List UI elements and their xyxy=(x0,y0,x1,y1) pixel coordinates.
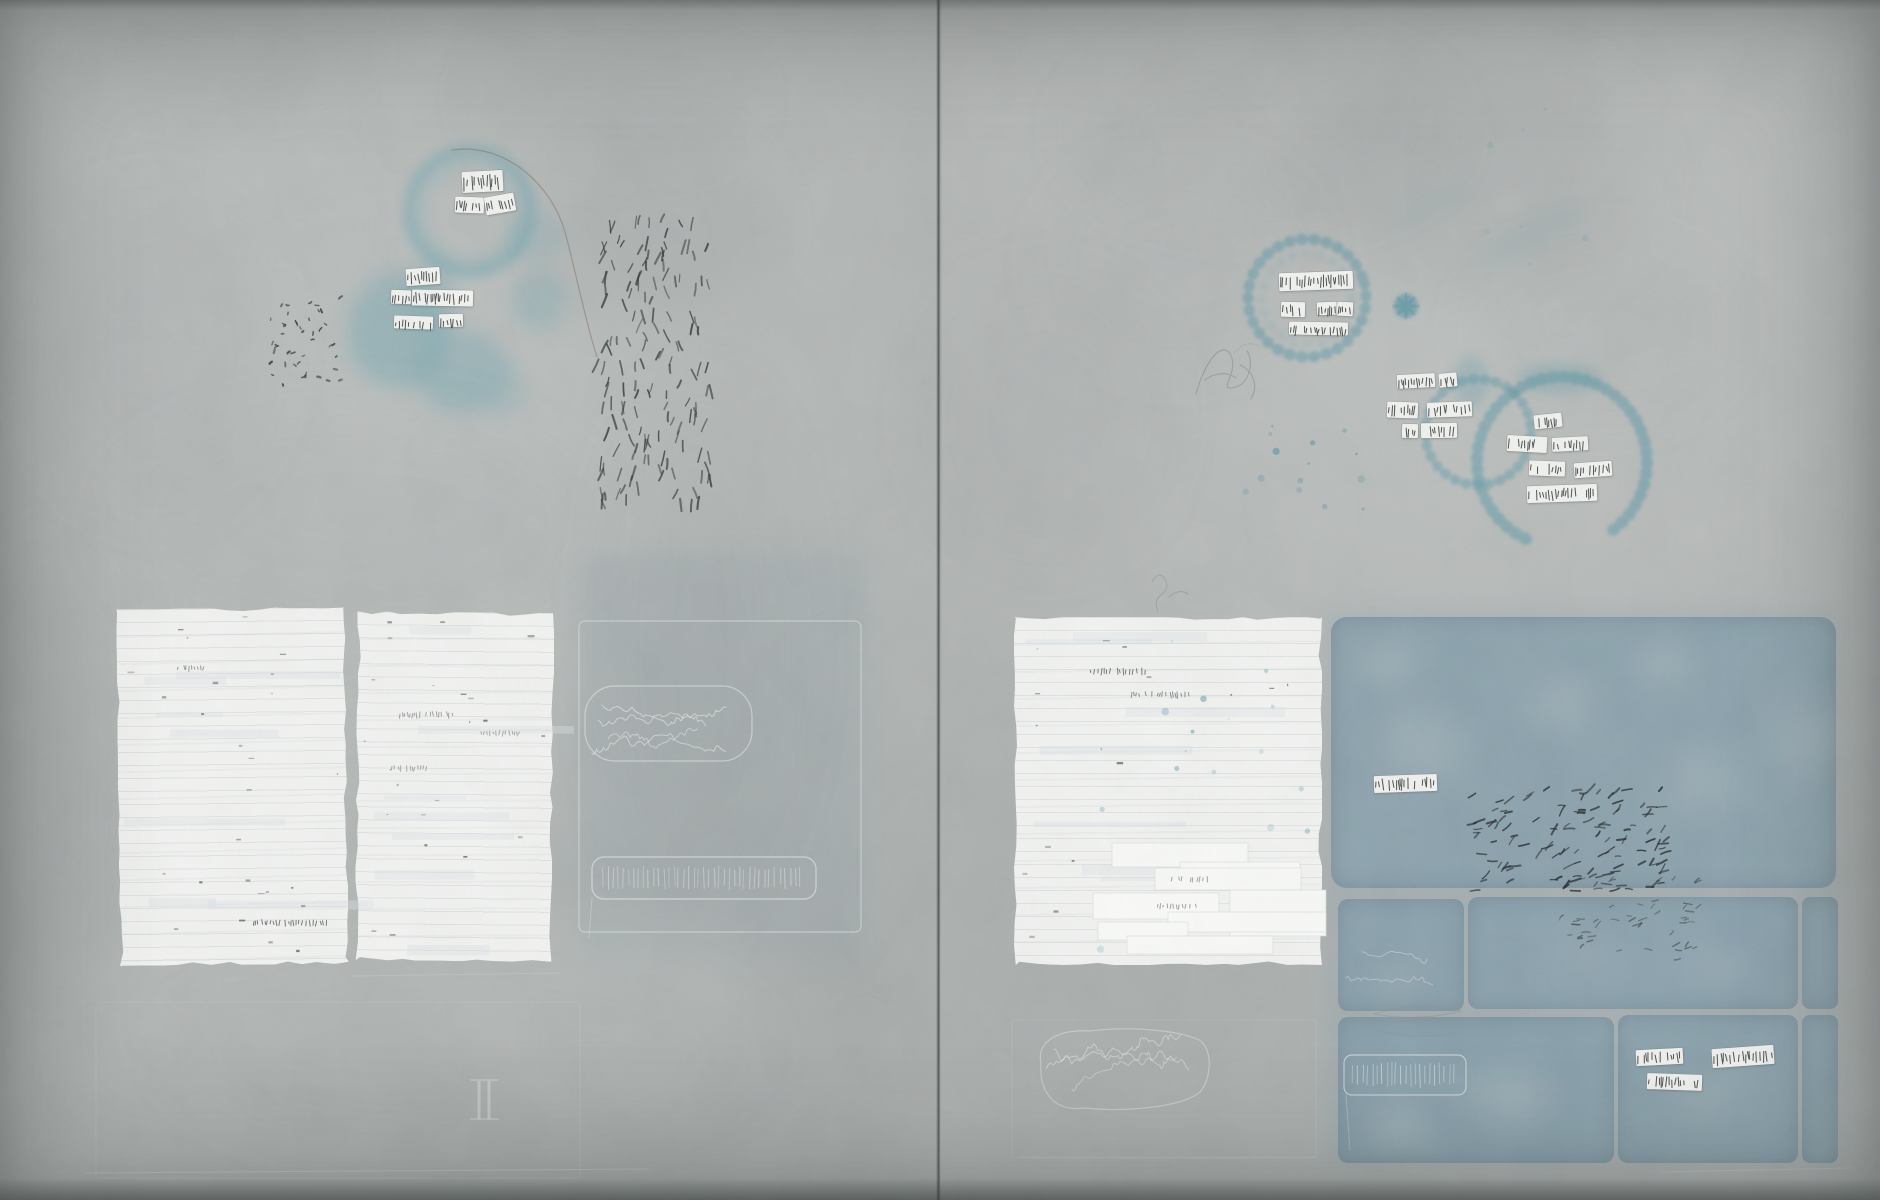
panel-seam xyxy=(936,0,942,1200)
right-panel xyxy=(942,0,1880,1200)
left-panel xyxy=(0,0,938,1200)
artwork-diptych-photo xyxy=(0,0,1880,1200)
